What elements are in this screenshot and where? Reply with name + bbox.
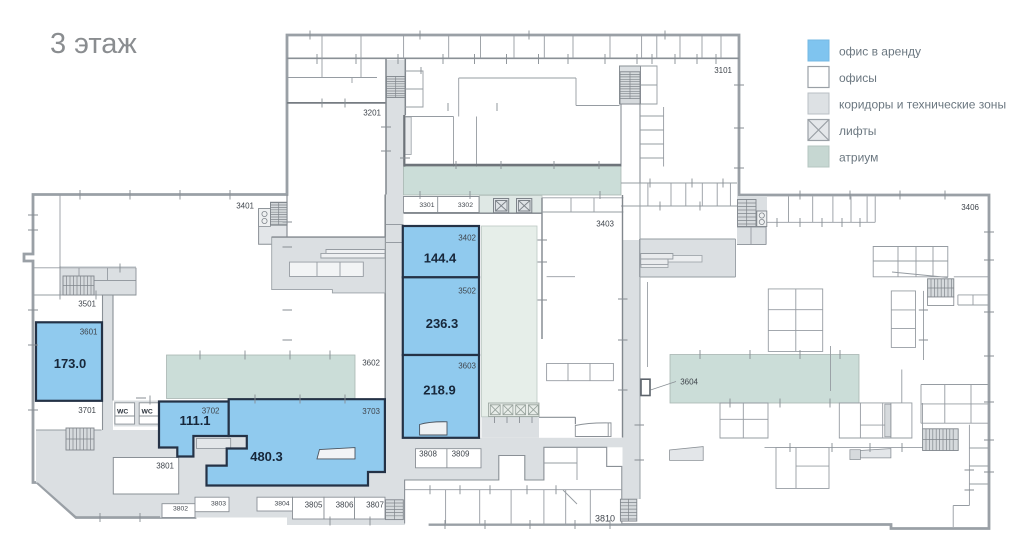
svg-text:3403: 3403 <box>596 220 614 229</box>
svg-text:3201: 3201 <box>363 109 381 118</box>
svg-text:3402: 3402 <box>458 234 476 243</box>
svg-text:3602: 3602 <box>362 359 380 368</box>
svg-text:3101: 3101 <box>714 66 732 75</box>
svg-text:3809: 3809 <box>452 450 470 459</box>
svg-text:3601: 3601 <box>80 328 98 337</box>
svg-text:3703: 3703 <box>362 407 380 416</box>
svg-text:3810: 3810 <box>595 514 615 524</box>
svg-text:218.9: 218.9 <box>423 383 456 398</box>
svg-text:173.0: 173.0 <box>54 356 87 371</box>
svg-text:3805: 3805 <box>305 501 323 510</box>
svg-text:236.3: 236.3 <box>426 316 459 331</box>
svg-text:3406: 3406 <box>961 203 979 212</box>
svg-text:3806: 3806 <box>336 501 354 510</box>
svg-text:WC: WC <box>117 409 128 416</box>
svg-text:3802: 3802 <box>173 506 188 513</box>
svg-text:WC: WC <box>142 409 153 416</box>
svg-text:офис в аренду: офис в аренду <box>839 45 921 59</box>
svg-text:офисы: офисы <box>839 71 877 85</box>
svg-text:3808: 3808 <box>419 450 437 459</box>
svg-text:атриум: атриум <box>839 151 878 165</box>
svg-text:3502: 3502 <box>458 287 476 296</box>
svg-text:3401: 3401 <box>236 202 254 211</box>
svg-text:3807: 3807 <box>366 501 384 510</box>
svg-text:коридоры и технические зоны: коридоры и технические зоны <box>839 98 1006 112</box>
svg-text:лифты: лифты <box>839 124 876 138</box>
svg-text:3604: 3604 <box>680 378 698 387</box>
svg-text:3 этаж: 3 этаж <box>50 28 137 60</box>
svg-text:3801: 3801 <box>156 462 174 471</box>
svg-text:480.3: 480.3 <box>250 449 283 464</box>
svg-text:111.1: 111.1 <box>179 413 210 428</box>
svg-text:3804: 3804 <box>274 501 289 508</box>
svg-text:3603: 3603 <box>458 362 476 371</box>
svg-text:3302: 3302 <box>458 202 473 209</box>
svg-text:3701: 3701 <box>78 406 96 415</box>
svg-text:3301: 3301 <box>419 202 434 209</box>
svg-text:3501: 3501 <box>78 300 96 309</box>
svg-text:3803: 3803 <box>211 501 226 508</box>
svg-text:144.4: 144.4 <box>424 251 457 266</box>
